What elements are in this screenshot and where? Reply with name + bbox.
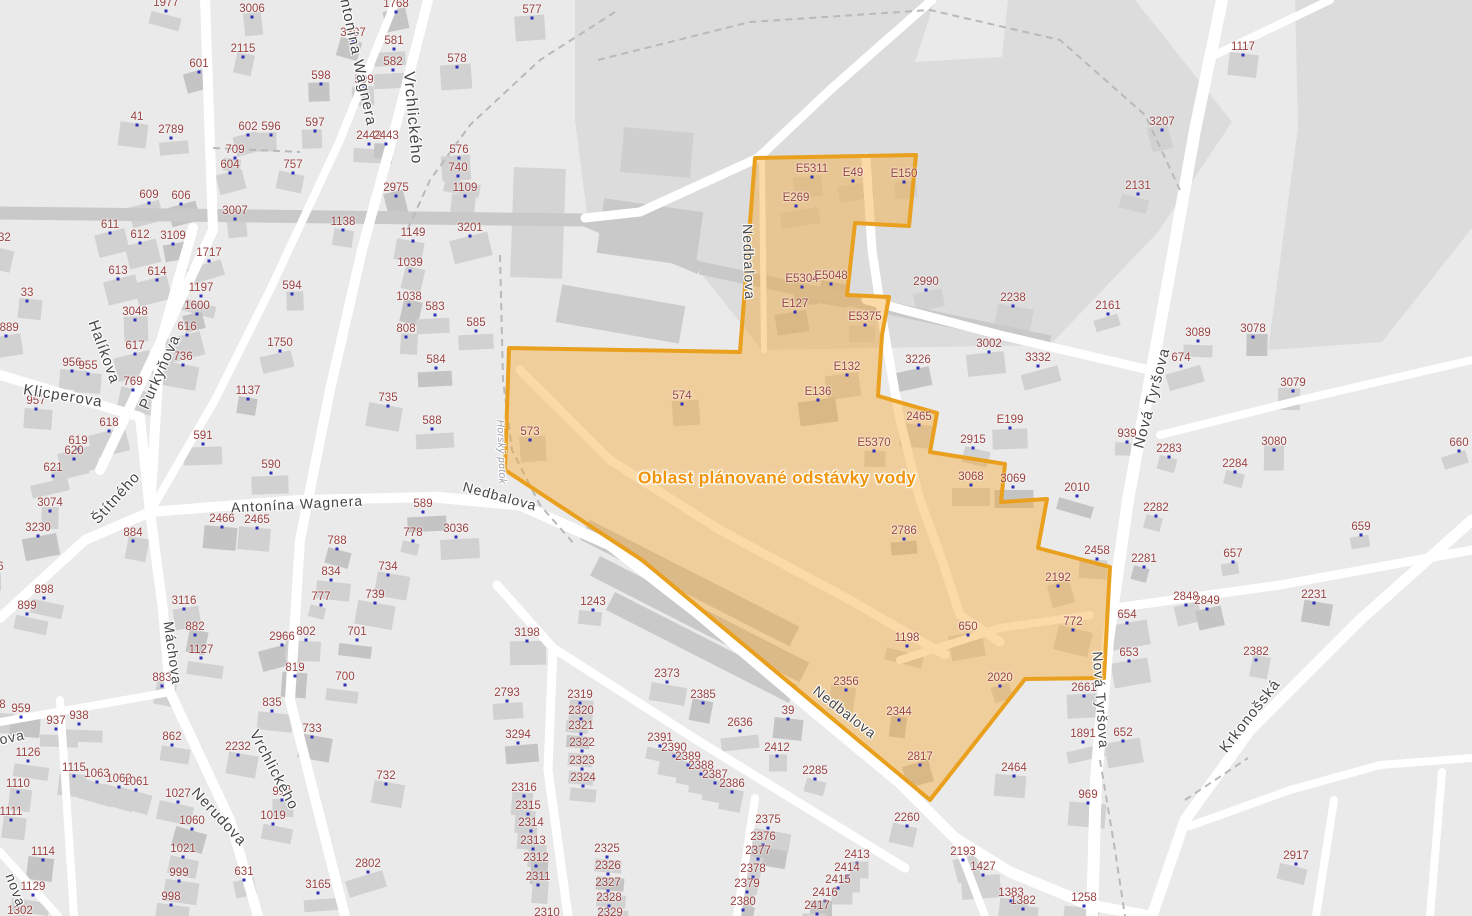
building-footprint <box>243 12 263 37</box>
building-footprint <box>1104 738 1144 769</box>
building-footprint <box>308 604 326 620</box>
building-footprint <box>418 371 453 388</box>
building-footprint <box>966 351 1006 377</box>
building-footprint <box>304 898 341 912</box>
building-footprint <box>159 140 189 155</box>
building-footprint <box>203 525 238 551</box>
building-footprint <box>994 774 1027 799</box>
building-footprint <box>895 366 932 392</box>
building-footprint <box>416 433 455 450</box>
building-footprint <box>1249 654 1271 679</box>
building-footprint <box>440 538 480 560</box>
building-footprint <box>171 826 207 854</box>
building-footprint <box>115 787 152 815</box>
landuse-zones <box>575 0 1472 350</box>
building-footprint <box>400 540 419 556</box>
building-footprint <box>365 402 403 432</box>
building-footprint <box>393 238 424 264</box>
building-footprint <box>302 129 323 149</box>
building-footprint <box>273 799 294 817</box>
building-footprint <box>992 428 1028 449</box>
building-footprint <box>514 14 546 41</box>
building-footprint <box>125 238 162 269</box>
building-footprint <box>215 169 246 195</box>
building-footprint <box>185 629 208 655</box>
building-footprint <box>505 744 539 765</box>
building-footprint <box>720 735 759 752</box>
map-canvas[interactable]: Oblast plánované odstávky vody 197730062… <box>0 0 1472 916</box>
building-footprint <box>118 121 149 148</box>
building-footprint <box>160 745 191 764</box>
building-footprint <box>578 610 602 626</box>
building-footprint <box>74 372 101 394</box>
building-footprint <box>595 876 624 891</box>
building-footprint <box>401 266 426 293</box>
building-footprint <box>374 51 406 67</box>
building-footprint <box>325 688 358 704</box>
building-footprint <box>1056 497 1094 518</box>
building-footprint <box>41 507 58 529</box>
building-footprint <box>374 571 411 600</box>
building-footprint <box>63 729 102 742</box>
building-footprint <box>596 893 626 908</box>
building-footprint <box>163 879 200 906</box>
building-footprint <box>259 350 294 374</box>
building-footprint <box>261 824 293 844</box>
building-footprint <box>440 63 473 90</box>
building-footprint <box>308 82 330 102</box>
building-footprint <box>94 228 130 258</box>
building-footprint <box>449 232 493 265</box>
building-footprint <box>1165 365 1204 391</box>
building-footprint <box>594 858 622 873</box>
building-footprint <box>400 333 418 355</box>
building-footprint <box>18 298 43 320</box>
building-footprint <box>531 880 549 904</box>
building-footprint <box>1156 455 1177 473</box>
building-footprint <box>13 615 48 636</box>
building-footprint <box>689 698 714 724</box>
building-footprint <box>1264 445 1284 470</box>
building-footprint <box>492 702 523 720</box>
building-footprint <box>338 643 372 659</box>
building-footprint <box>1111 657 1152 688</box>
building-footprint <box>1093 314 1120 333</box>
building-footprint <box>1066 693 1097 719</box>
building-footprint <box>441 155 472 182</box>
building-footprint <box>148 11 181 32</box>
building-footprint <box>286 291 304 311</box>
building-footprint <box>345 870 387 898</box>
building-footprint <box>251 475 289 494</box>
building-footprint <box>26 856 55 882</box>
building-footprint <box>23 408 52 430</box>
building-footprint <box>1221 562 1240 577</box>
building-footprint <box>134 275 173 307</box>
building-footprint <box>1227 52 1259 78</box>
building-footprint <box>173 606 202 631</box>
building-footprint <box>124 316 149 342</box>
building-footprint <box>315 580 351 601</box>
building-footprint <box>257 132 277 152</box>
building-footprint <box>186 661 223 679</box>
building-footprint <box>1130 565 1149 583</box>
building-footprint <box>237 526 271 552</box>
building-footprint <box>568 770 594 785</box>
building-footprint <box>1276 863 1307 885</box>
building-footprint <box>257 711 294 733</box>
building-footprint <box>236 396 257 416</box>
base-map-graphics <box>0 0 1472 916</box>
building-footprint <box>1143 514 1163 532</box>
building-footprint <box>30 599 64 619</box>
building-footprint <box>1183 344 1212 357</box>
building-footprint <box>416 318 450 335</box>
building-footprint <box>407 515 447 532</box>
building-footprint <box>458 334 494 351</box>
building-footprint <box>8 788 33 813</box>
building-footprint <box>1 816 27 841</box>
building-footprint <box>1441 450 1469 470</box>
building-footprint <box>30 477 70 498</box>
building-footprint <box>889 822 918 847</box>
building-footprint <box>324 547 351 569</box>
building-footprint <box>1009 905 1038 916</box>
building-footprint <box>804 778 827 797</box>
building-footprint <box>1246 334 1267 356</box>
building-footprint <box>510 641 546 666</box>
building-footprint <box>156 800 194 826</box>
building-footprint <box>22 533 61 561</box>
building-footprint <box>832 888 853 905</box>
building-footprint <box>718 787 744 813</box>
building-footprint <box>566 720 589 734</box>
building-footprint <box>354 600 396 630</box>
building-footprint <box>597 908 628 916</box>
building-footprint <box>772 717 803 741</box>
building-footprint <box>161 361 200 391</box>
building-footprint <box>182 311 206 332</box>
building-footprint <box>1223 470 1245 488</box>
building-footprint <box>233 52 255 76</box>
building-footprint <box>769 755 787 772</box>
building-footprint <box>566 735 590 749</box>
building-footprint <box>569 787 596 802</box>
building-footprint <box>1115 442 1131 456</box>
building-footprint <box>165 331 206 363</box>
building-footprint <box>371 780 406 808</box>
building-footprint <box>13 763 49 781</box>
building-footprint <box>567 752 592 767</box>
building-footprint <box>0 333 23 358</box>
building-footprint <box>167 855 199 879</box>
building-footprint <box>225 752 258 779</box>
building-footprint <box>0 243 15 273</box>
building-footprint <box>275 170 304 193</box>
building-footprint <box>336 37 362 61</box>
building-footprint <box>124 536 149 563</box>
building-footprint <box>332 228 354 248</box>
building-footprint <box>1021 365 1062 390</box>
building-footprint <box>1350 534 1371 549</box>
building-footprint <box>649 682 688 706</box>
building-footprint <box>1301 600 1333 627</box>
building-footprint <box>154 903 190 916</box>
building-footprint <box>0 573 1 591</box>
